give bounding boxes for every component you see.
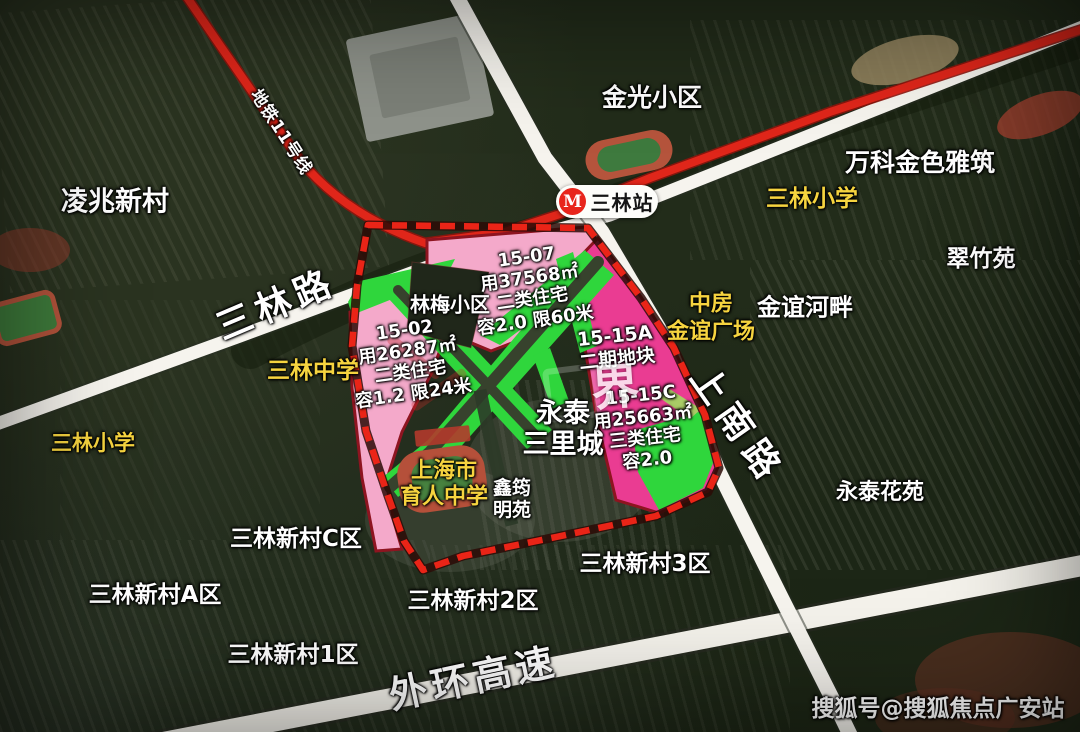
xincun-3-label: 三林新村3区: [579, 544, 710, 578]
xincun-1-label: 三林新村1区: [227, 635, 358, 669]
parcel-15-07-label: 15-07用37568㎡二类住宅容2.0 限60米: [467, 239, 595, 339]
sanlin-xiaoxue-west-label: 三林小学: [51, 427, 135, 457]
sanlin-zhongxue-label: 三林中学: [267, 351, 359, 385]
parcel-15-02-label: 15-02用26287㎡二类住宅容1.2 限24米: [345, 312, 473, 412]
cuizhu-yuan-label: 翠竹苑: [947, 239, 1016, 273]
sanlin-xiaoxue-east-label: 三林小学: [766, 179, 858, 213]
jinyi-hepan-label: 金谊河畔: [757, 288, 853, 323]
station-name: 三林站: [586, 187, 658, 216]
zhongfang-jinyi-guangchang-label: 中房金谊广场: [667, 291, 755, 346]
xinyun-mingyuan-label: 鑫筠明苑: [493, 478, 531, 522]
xincun-2-label: 三林新村2区: [407, 581, 538, 615]
map-canvas: M 三林站 凌兆新村金光小区万科金色雅筑三林小学翠竹苑中房金谊广场金谊河畔林梅小…: [0, 0, 1080, 732]
xincun-c-label: 三林新村C区: [230, 519, 362, 553]
shanghai-metro-logo-icon: M: [559, 188, 586, 215]
watermark-sohu-label: 搜狐号@搜狐焦点广安站: [812, 689, 1065, 723]
map-overlay-svg: [0, 0, 1080, 732]
jinguang-xiaoqu-label: 金光小区: [602, 78, 702, 114]
metro-station-badge: M 三林站: [556, 185, 658, 218]
yuren-zhongxue-label: 上海市育人中学: [400, 459, 488, 512]
yongtai-huayuan-label: 永泰花苑: [836, 474, 924, 506]
lingzhao-xincun-label: 凌兆新村: [61, 180, 169, 219]
xincun-a-label: 三林新村A区: [89, 575, 222, 609]
watermark-center-label: 界: [589, 346, 642, 419]
wanke-jinse-yazhu-label: 万科金色雅筑: [845, 143, 995, 179]
